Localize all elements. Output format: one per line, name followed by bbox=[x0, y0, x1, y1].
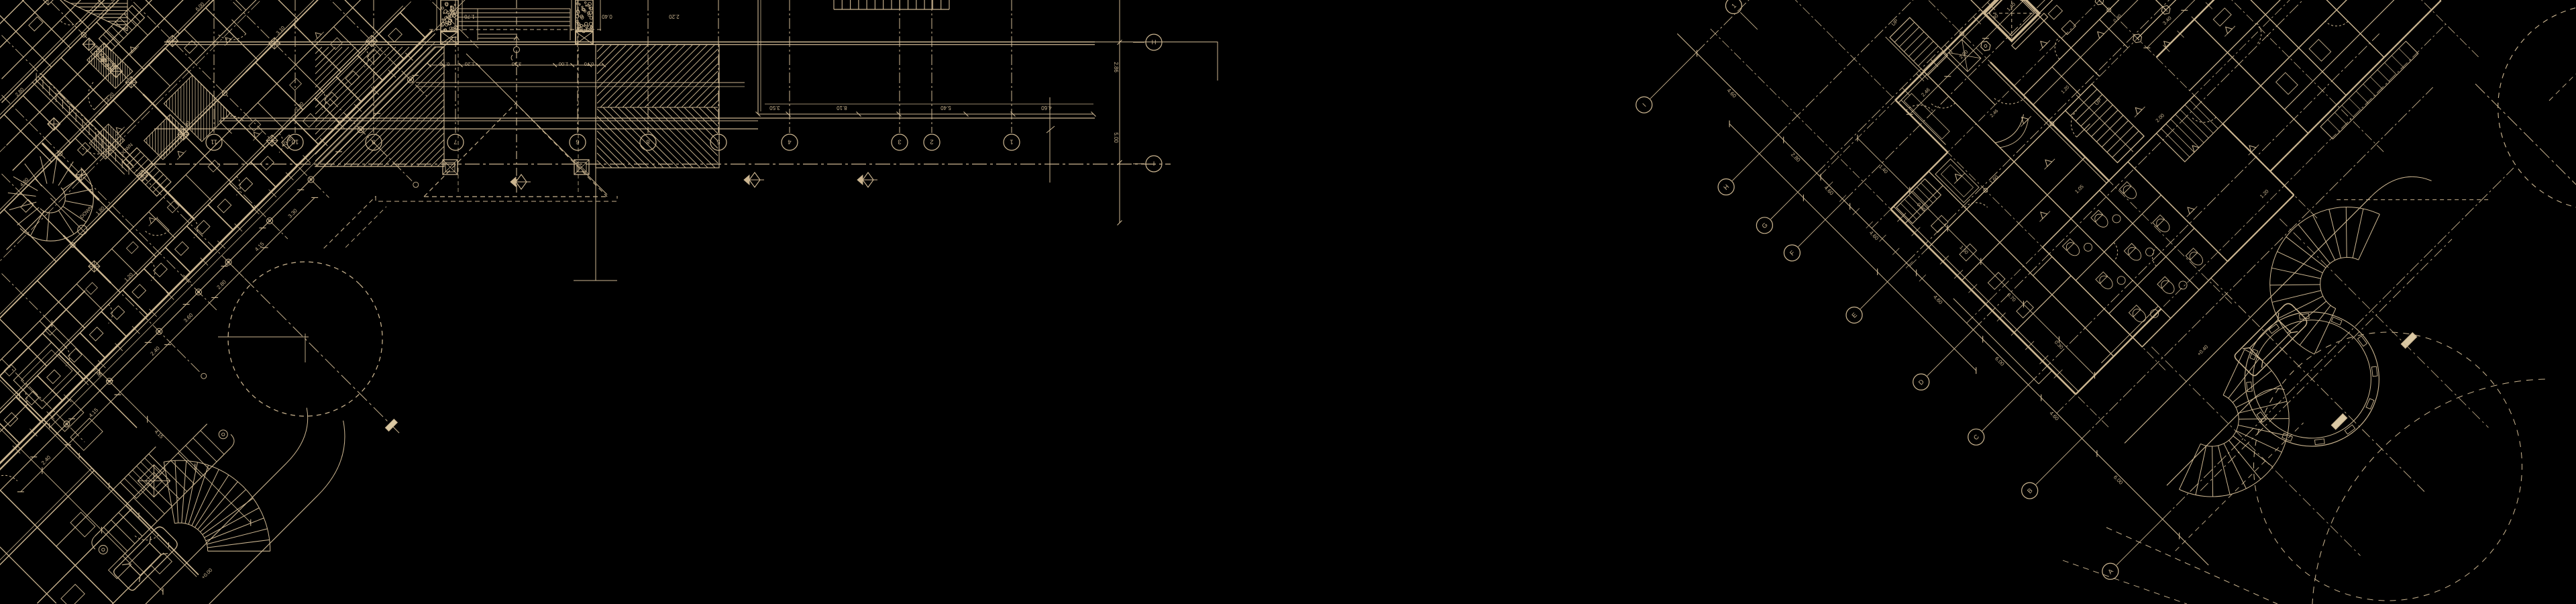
svg-text:3: 3 bbox=[898, 138, 901, 146]
svg-text:11: 11 bbox=[211, 138, 217, 146]
svg-text:5.40: 5.40 bbox=[941, 105, 951, 111]
svg-text:1.00: 1.00 bbox=[559, 61, 569, 67]
svg-text:7: 7 bbox=[453, 138, 457, 146]
svg-text:3.50: 3.50 bbox=[769, 105, 780, 111]
svg-text:0.40: 0.40 bbox=[602, 13, 612, 19]
svg-text:H: H bbox=[1151, 38, 1156, 46]
svg-text:2: 2 bbox=[930, 138, 933, 146]
svg-text:1.20: 1.20 bbox=[465, 61, 475, 67]
svg-text:0.70: 0.70 bbox=[584, 61, 594, 67]
svg-text:2.20: 2.20 bbox=[669, 13, 680, 19]
svg-text:5: 5 bbox=[716, 138, 720, 146]
svg-text:0.70: 0.70 bbox=[440, 61, 450, 67]
svg-text:8.10: 8.10 bbox=[837, 105, 847, 111]
svg-text:I: I bbox=[1153, 160, 1155, 167]
svg-text:1: 1 bbox=[1010, 138, 1013, 146]
svg-text:4: 4 bbox=[788, 138, 791, 146]
svg-text:2.86: 2.86 bbox=[1113, 62, 1119, 72]
svg-text:5.00: 5.00 bbox=[1113, 132, 1119, 143]
svg-text:6: 6 bbox=[576, 138, 579, 146]
svg-text:1.70: 1.70 bbox=[464, 13, 475, 19]
svg-text:3.10: 3.10 bbox=[512, 61, 522, 67]
